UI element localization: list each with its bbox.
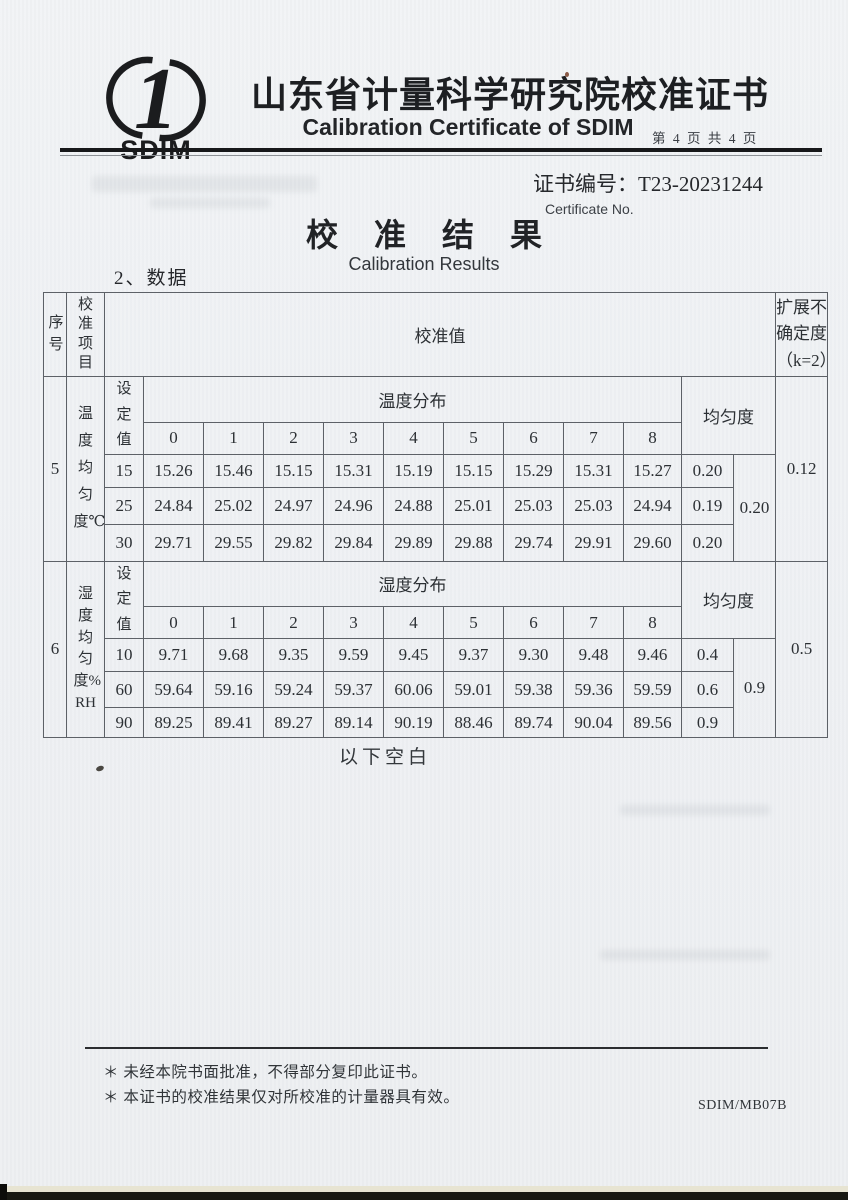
point-label: 1 [204,422,264,454]
value-cell: 60.06 [384,672,444,708]
value-cell: 15.27 [624,454,682,487]
value-cell: 89.41 [204,708,264,738]
value-cell: 88.46 [444,708,504,738]
value-cell: 24.88 [384,487,444,524]
value-cell: 9.59 [324,639,384,672]
uniformity-cell: 0.6 [682,672,734,708]
item-cell-temperature: 温度均匀度℃ [67,377,105,562]
uniformity-label: 均匀度 [682,561,776,639]
results-title-cn: 校 准 结 果 [0,210,848,256]
value-cell: 59.59 [624,672,682,708]
point-label: 2 [264,422,324,454]
value-cell: 29.71 [144,524,204,561]
set-value-cell: 15 [105,454,144,487]
page-number-info: 第 4 页 共 4 页 [652,127,758,147]
value-cell: 15.15 [264,454,324,487]
value-cell: 59.64 [144,672,204,708]
max-uniformity-cell: 0.9 [734,639,776,738]
item-cell-humidity: 湿度均匀度%RH [67,561,105,738]
value-cell: 29.84 [324,524,384,561]
set-value-label: 设定值 [105,377,144,455]
certificate-number: 证书编号：T23-20231244 [533,168,763,198]
value-cell: 15.26 [144,454,204,487]
value-cell: 59.24 [264,672,324,708]
scanned-certificate-page: 1 SDIM 山东省计量科学研究院校准证书 Calibration Certif… [0,0,848,1200]
scan-edge-dark-strip [0,1192,848,1200]
uncertainty-cell: 0.5 [776,561,828,738]
data-section-label: 2、数据 [114,263,189,290]
seq-cell: 5 [44,377,67,562]
scan-corner-notch [0,1184,7,1200]
set-value-cell: 90 [105,708,144,738]
value-cell: 59.37 [324,672,384,708]
table-row: 25 24.84 25.02 24.97 24.96 24.88 25.01 2… [44,487,828,524]
value-cell: 29.88 [444,524,504,561]
bleedthrough-smudge [92,176,317,192]
point-label: 0 [144,422,204,454]
value-cell: 15.15 [444,454,504,487]
header-item: 校准项目 [67,293,105,377]
bleedthrough-smudge [620,805,770,815]
value-cell: 29.91 [564,524,624,561]
point-label: 6 [504,607,564,639]
humidity-dist-label-row: 6 湿度均匀度%RH 设定值 湿度分布 均匀度 0.5 [44,561,828,607]
value-cell: 89.25 [144,708,204,738]
table-row: 15 15.26 15.46 15.15 15.31 15.19 15.15 1… [44,454,828,487]
bleedthrough-smudge [150,198,270,208]
set-value-cell: 30 [105,524,144,561]
uniformity-label: 均匀度 [682,377,776,455]
uniformity-cell: 0.20 [682,454,734,487]
point-label: 5 [444,607,504,639]
set-value-cell: 25 [105,487,144,524]
header-seq: 序号 [44,293,67,377]
point-label: 8 [624,422,682,454]
point-label: 6 [504,422,564,454]
uncertainty-cell: 0.12 [776,377,828,562]
table-row: 10 9.71 9.68 9.35 9.59 9.45 9.37 9.30 9.… [44,639,828,672]
max-uniformity-cell: 0.20 [734,454,776,561]
bleedthrough-smudge [600,950,770,960]
below-blank-label: 以下空白 [0,742,770,769]
table-row: 90 89.25 89.41 89.27 89.14 90.19 88.46 8… [44,708,828,738]
institute-title-cn: 山东省计量科学研究院校准证书 [245,66,775,118]
value-cell: 90.04 [564,708,624,738]
header-expanded-uncertainty: 扩展不 确定度 （k=2） [776,293,828,377]
uniformity-cell: 0.4 [682,639,734,672]
form-code: SDIM/MB07B [698,1098,787,1114]
header-calibration-value: 校准值 [105,293,776,377]
value-cell: 9.68 [204,639,264,672]
value-cell: 25.01 [444,487,504,524]
table-row: 30 29.71 29.55 29.82 29.84 29.89 29.88 2… [44,524,828,561]
value-cell: 9.37 [444,639,504,672]
value-cell: 59.16 [204,672,264,708]
value-cell: 9.30 [504,639,564,672]
value-cell: 29.60 [624,524,682,561]
value-cell: 90.19 [384,708,444,738]
point-label: 4 [384,607,444,639]
point-label: 4 [384,422,444,454]
value-cell: 89.74 [504,708,564,738]
value-cell: 59.36 [564,672,624,708]
point-label: 2 [264,607,324,639]
point-label: 8 [624,607,682,639]
calibration-results-table: 序号 校准项目 校准值 扩展不 确定度 （k=2） 5 温度均匀度℃ 设定值 温… [43,292,828,738]
value-cell: 15.29 [504,454,564,487]
point-label: 3 [324,422,384,454]
value-cell: 29.55 [204,524,264,561]
seq-cell: 6 [44,561,67,738]
value-cell: 9.45 [384,639,444,672]
value-cell: 24.84 [144,487,204,524]
point-label: 7 [564,607,624,639]
value-cell: 89.27 [264,708,324,738]
point-label: 5 [444,422,504,454]
header-rule [60,148,822,152]
value-cell: 15.31 [324,454,384,487]
value-cell: 89.14 [324,708,384,738]
value-cell: 25.03 [504,487,564,524]
sdim-logo-icon: 1 SDIM [98,56,214,162]
value-cell: 15.19 [384,454,444,487]
value-cell: 25.02 [204,487,264,524]
set-value-label: 设定值 [105,561,144,639]
footer-rule [85,1047,768,1049]
point-label: 1 [204,607,264,639]
temp-distribution-label: 温度分布 [144,377,682,423]
value-cell: 89.56 [624,708,682,738]
set-value-cell: 10 [105,639,144,672]
value-cell: 59.38 [504,672,564,708]
value-cell: 29.82 [264,524,324,561]
value-cell: 9.46 [624,639,682,672]
value-cell: 15.46 [204,454,264,487]
value-cell: 9.48 [564,639,624,672]
temp-dist-label-row: 5 温度均匀度℃ 设定值 温度分布 均匀度 0.12 [44,377,828,423]
set-value-cell: 60 [105,672,144,708]
value-cell: 24.96 [324,487,384,524]
table-header-row: 序号 校准项目 校准值 扩展不 确定度 （k=2） [44,293,828,377]
point-label: 7 [564,422,624,454]
point-label: 3 [324,607,384,639]
humidity-distribution-label: 湿度分布 [144,561,682,607]
table-row: 60 59.64 59.16 59.24 59.37 60.06 59.01 5… [44,672,828,708]
value-cell: 24.94 [624,487,682,524]
point-label: 0 [144,607,204,639]
value-cell: 9.35 [264,639,324,672]
value-cell: 29.74 [504,524,564,561]
institute-title-en: Calibration Certificate of SDIM [258,114,678,141]
value-cell: 24.97 [264,487,324,524]
value-cell: 25.03 [564,487,624,524]
uniformity-cell: 0.20 [682,524,734,561]
footer-note-2: ＊ 本证书的校准结果仅对所校准的计量器具有效。 [103,1085,459,1107]
uniformity-cell: 0.19 [682,487,734,524]
value-cell: 59.01 [444,672,504,708]
value-cell: 9.71 [144,639,204,672]
header-rule-echo [60,155,822,156]
sdim-logo: 1 SDIM [98,56,214,162]
footer-note-1: ＊ 未经本院书面批准，不得部分复印此证书。 [103,1060,427,1082]
value-cell: 29.89 [384,524,444,561]
value-cell: 15.31 [564,454,624,487]
uniformity-cell: 0.9 [682,708,734,738]
